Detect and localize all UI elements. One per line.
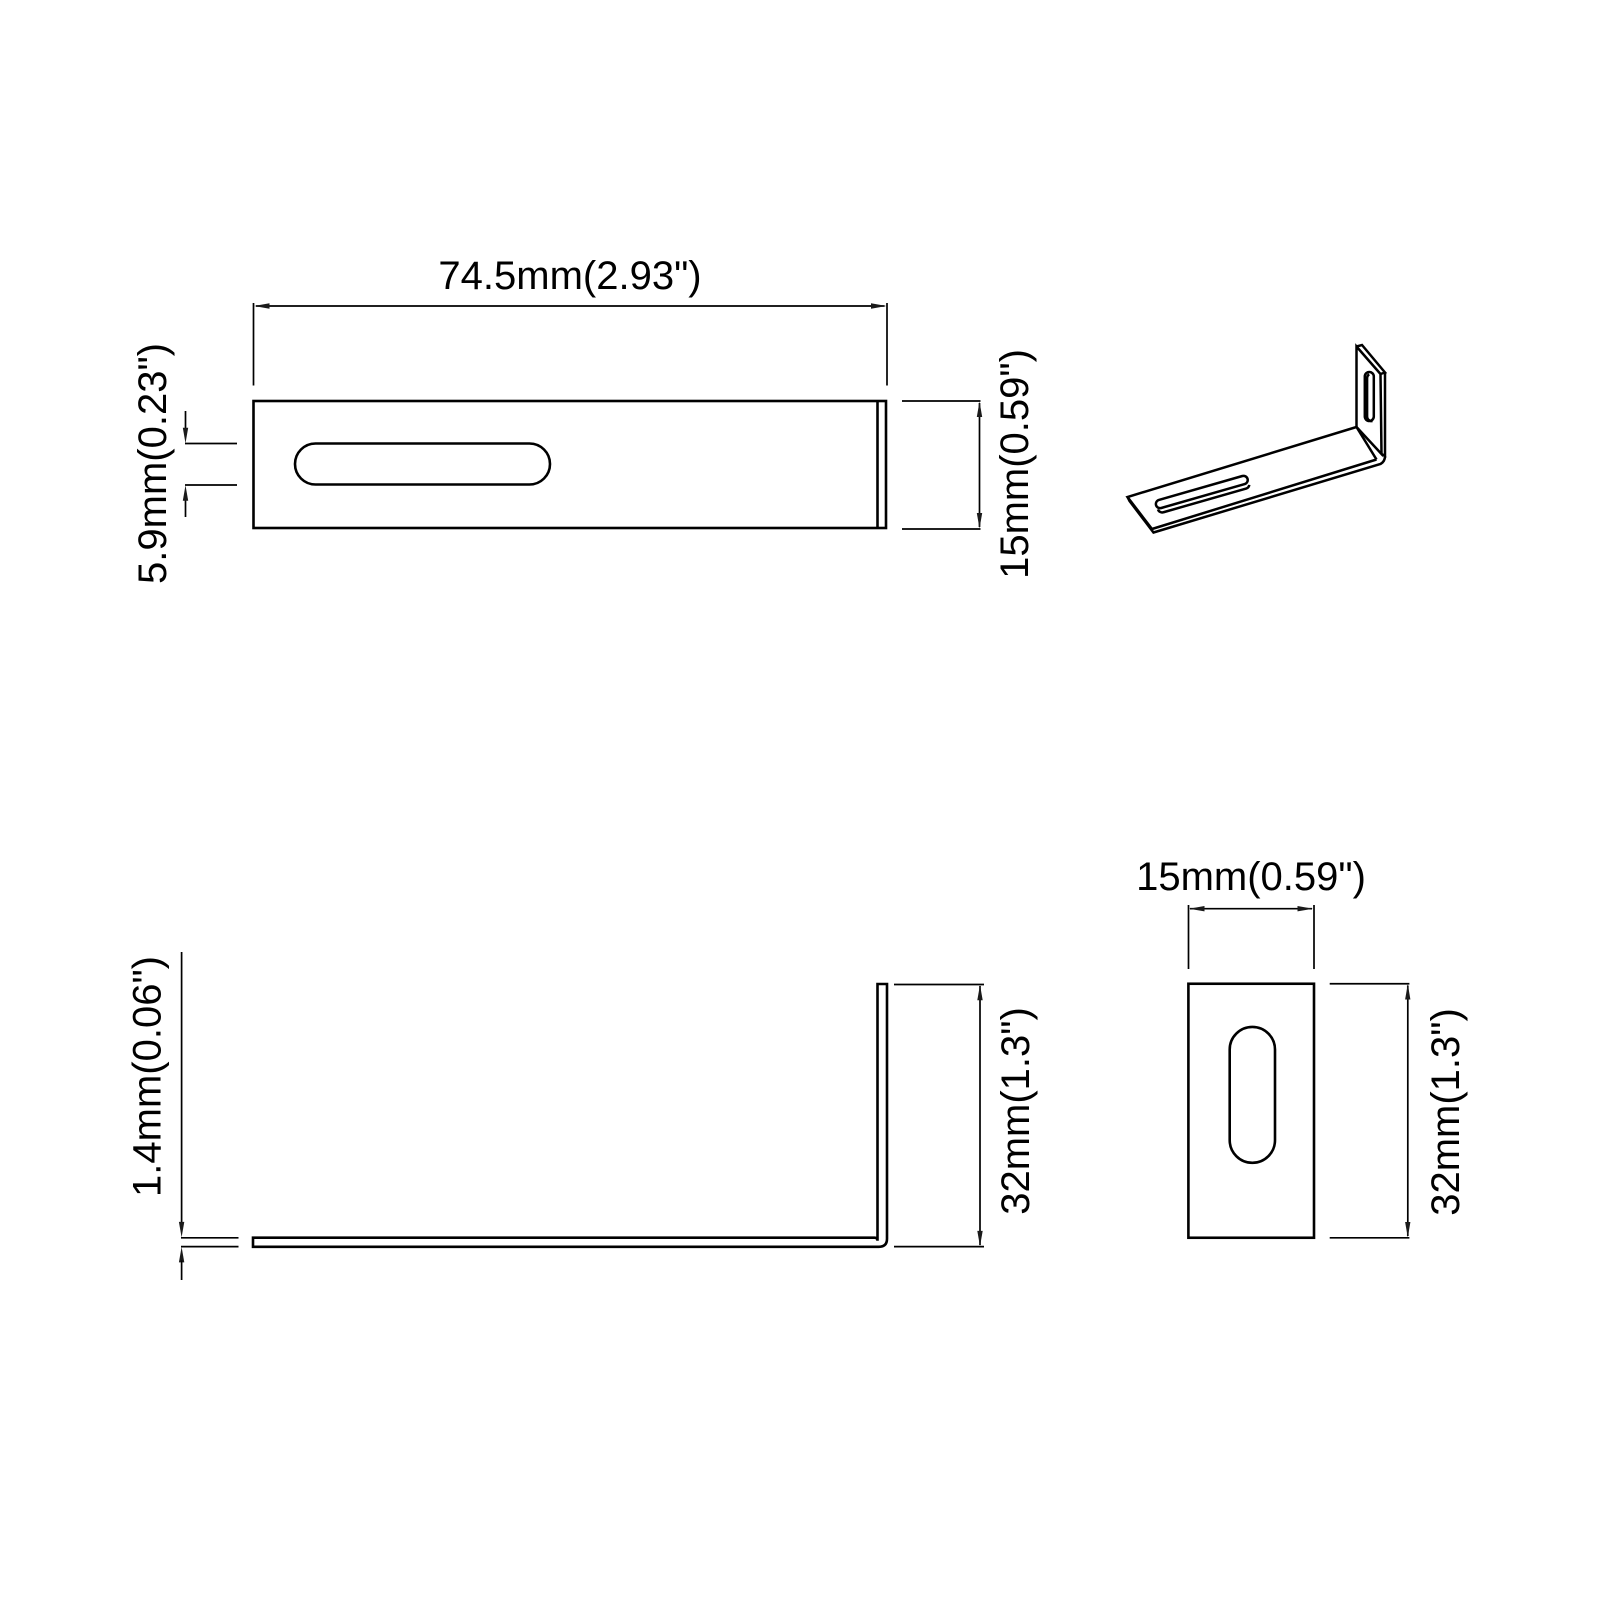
svg-text:74.5mm(2.93"): 74.5mm(2.93") xyxy=(438,254,701,298)
svg-text:32mm(1.3"): 32mm(1.3") xyxy=(994,1007,1038,1215)
svg-text:15mm(0.59"): 15mm(0.59") xyxy=(1136,855,1366,899)
svg-text:32mm(1.3"): 32mm(1.3") xyxy=(1424,1008,1468,1216)
svg-text:15mm(0.59"): 15mm(0.59") xyxy=(993,349,1037,579)
svg-text:5.9mm(0.23"): 5.9mm(0.23") xyxy=(131,343,175,584)
svg-text:1.4mm(0.06"): 1.4mm(0.06") xyxy=(126,956,170,1197)
